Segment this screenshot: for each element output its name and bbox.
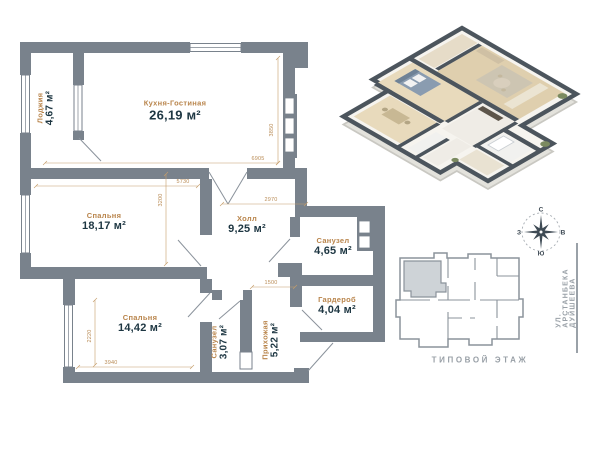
room-area: 18,17 м² [82, 220, 126, 233]
dimension-kitchen-width: 6905 [251, 156, 264, 162]
room-name: Спальня [82, 211, 126, 220]
room-name: Санузел [210, 325, 219, 359]
compass-north-label: С [539, 207, 544, 214]
street-name-label: УЛ. АРСТАНБЕКА ДУЙШЕЕВА [556, 268, 577, 327]
room-area: 4,04 м² [318, 304, 356, 317]
room-label-hall: Холл 9,25 м² [228, 214, 266, 236]
highlighted-unit [404, 261, 446, 297]
room-area: 5,22 м² [270, 320, 282, 359]
room-area: 14,42 м² [118, 322, 162, 335]
dimension-bedroom1-width: 5730 [176, 179, 189, 185]
compass-south-label: Ю [538, 251, 545, 258]
room-label-bathroom: Санузел 4,65 м² [314, 236, 352, 258]
room-label-kitchen-living: Кухня-Гостиная 26,19 м² [144, 99, 207, 124]
room-label-bedroom-2: Спальня 14,42 м² [118, 313, 162, 335]
room-name: Прихожая [261, 320, 270, 359]
room-name: Спальня [118, 313, 162, 322]
room-label-wardrobe: Гардероб 4,04 м² [318, 295, 356, 317]
dimension-entry-width: 1500 [264, 280, 277, 286]
room-name: Гардероб [318, 295, 356, 304]
building-floor-mini-plan [396, 253, 523, 347]
room-name: Кухня-Гостиная [144, 99, 207, 108]
dimension-kitchen-depth: 3850 [269, 123, 275, 136]
dimension-bedroom2-depth: 2220 [87, 329, 93, 342]
dimension-hall-width: 2970 [264, 197, 277, 203]
compass-east-label: В [561, 230, 566, 237]
dimension-bedroom2-width: 3940 [104, 360, 117, 366]
room-area: 4,67 м² [45, 91, 57, 125]
room-name: Холл [228, 214, 266, 223]
room-area: 4,65 м² [314, 245, 352, 258]
room-area: 9,25 м² [228, 223, 266, 236]
typical-floor-caption: ТИПОВОЙ ЭТАЖ [432, 356, 529, 365]
room-name: Санузел [314, 236, 352, 245]
dimension-bedroom1-depth: 3200 [158, 193, 164, 206]
room-area: 26,19 м² [144, 108, 207, 124]
compass-rose [522, 213, 560, 251]
room-area: 3,07 м² [219, 325, 231, 359]
apartment-3d-render [326, 28, 600, 199]
compass-west-label: З [517, 230, 521, 237]
room-label-loggia: Лоджия 4,67 м² [36, 91, 57, 125]
room-label-wc: Санузел 3,07 м² [210, 325, 231, 359]
floor-plan-page: Лоджия 4,67 м² Кухня-Гостиная 26,19 м² С… [0, 0, 600, 450]
room-label-bedroom-1: Спальня 18,17 м² [82, 211, 126, 233]
room-label-entry-hall: Прихожая 5,22 м² [261, 320, 282, 359]
room-name: Лоджия [36, 91, 45, 125]
